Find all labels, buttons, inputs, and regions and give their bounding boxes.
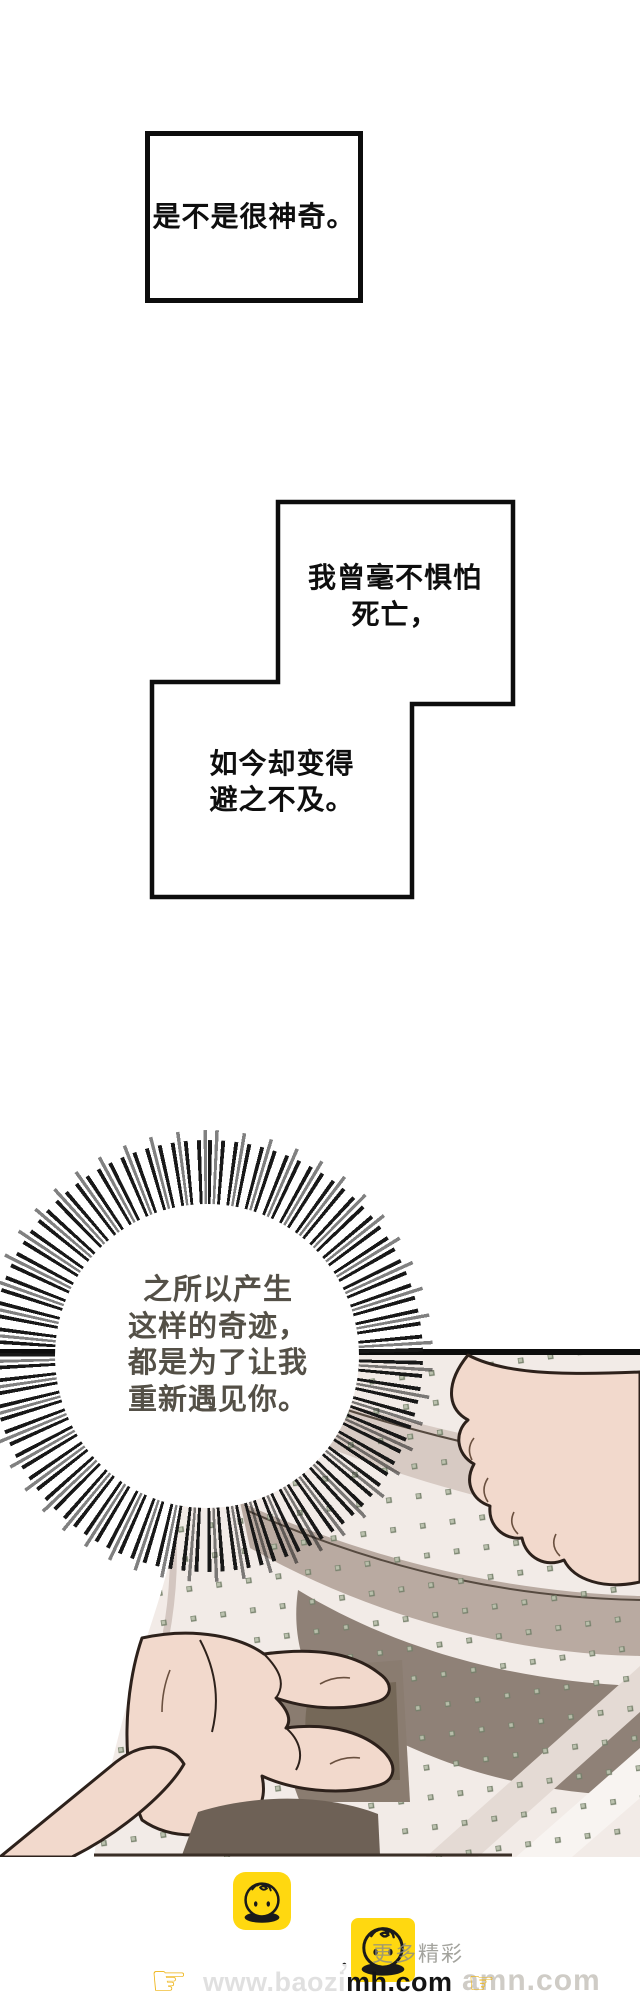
footer-more-text: 更多精彩 <box>372 1938 464 1968</box>
speech-box-1-text: 是不是很神奇。 <box>152 199 355 236</box>
baozi-app-icon <box>233 1872 291 1930</box>
starburst-bubble-text: 之所以产生 这样的奇迹， 都是为了让我 重新遇见你。 <box>88 1272 348 1418</box>
speech-box-1: 是不是很神奇。 <box>145 131 363 303</box>
pointing-finger-icon: ☞ <box>150 1956 188 2005</box>
speech-box-2-3-outline <box>140 490 530 910</box>
pointing-finger-icon-small: ☞ <box>468 1966 495 2001</box>
comic-page: 是不是很神奇。 我曾毫不惧怕 死亡， 如今却变得 避之不及。 <box>0 0 640 2015</box>
speech-box-2-text: 我曾毫不惧怕 死亡， <box>295 560 495 634</box>
speech-box-3-text: 如今却变得 避之不及。 <box>182 747 382 819</box>
watermark-cover-patch <box>200 1964 348 1997</box>
